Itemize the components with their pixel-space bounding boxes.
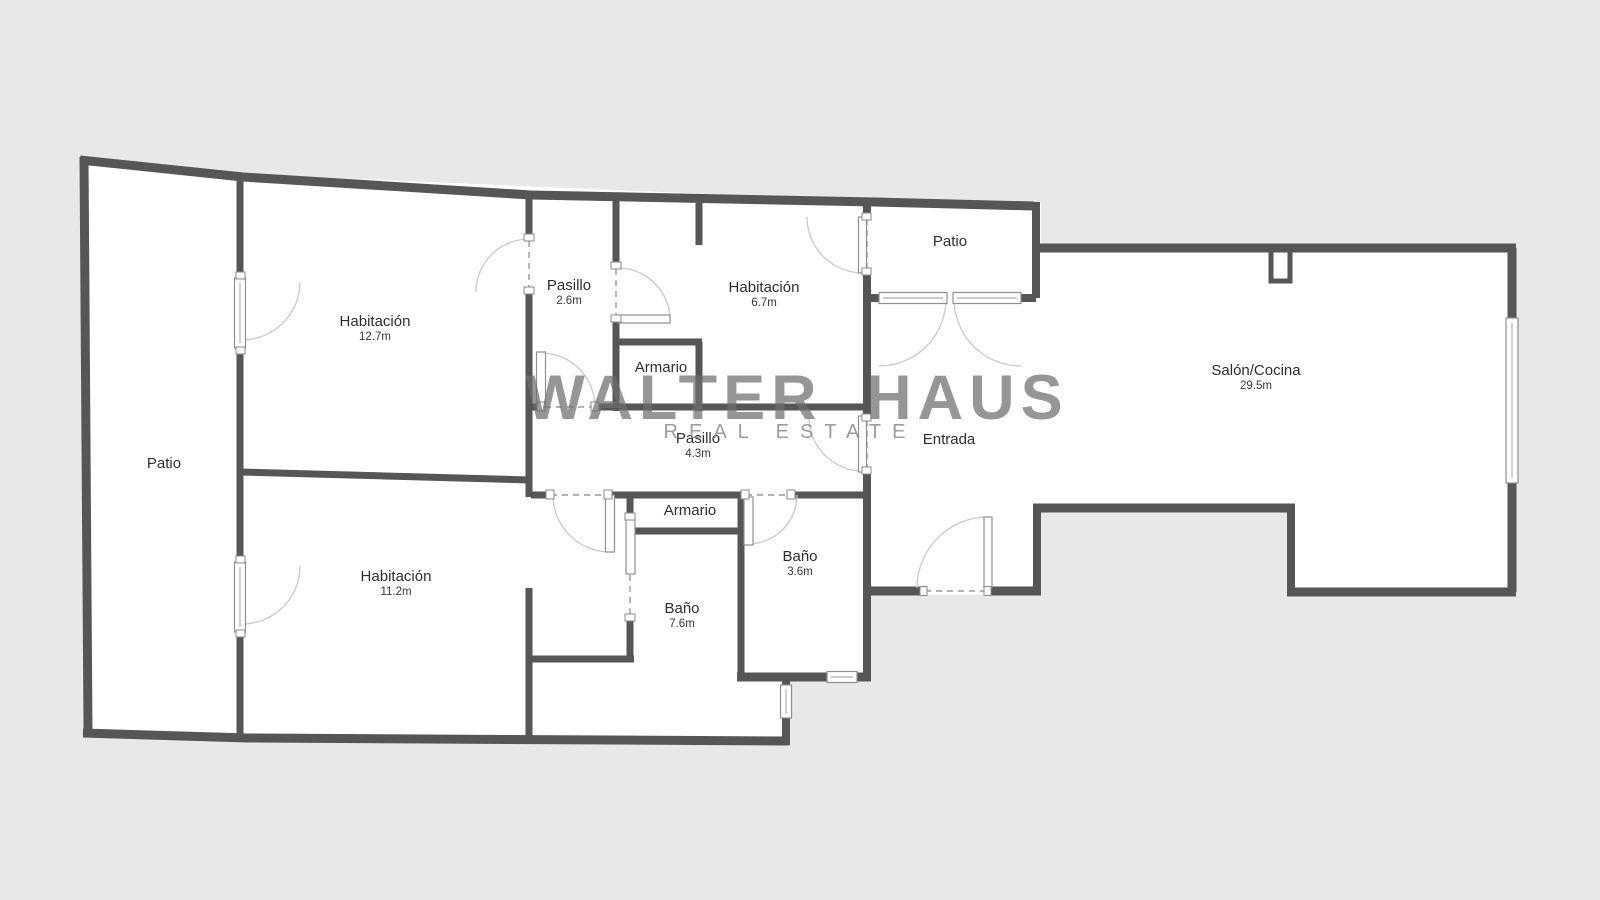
window-bano76-bottom xyxy=(781,685,792,718)
window-patio-hab127 xyxy=(235,278,246,348)
french-door-right xyxy=(953,293,1021,304)
room-label-habitacion-67: Habitación 6.7m xyxy=(729,279,800,311)
room-label-bano-36: Baño 3.6m xyxy=(782,548,817,580)
door-leaf-pasillo43-bano76 xyxy=(606,495,615,552)
door-leaf-front-entrance xyxy=(984,517,992,588)
room-area: 7.6m xyxy=(664,617,699,632)
room-name: Salón/Cocina xyxy=(1211,362,1300,379)
room-area: 12.7m xyxy=(340,330,411,345)
room-label-armario-bottom: Armario xyxy=(664,502,717,519)
room-name: Baño xyxy=(664,600,699,617)
window-patio-hab112 xyxy=(235,562,246,632)
window-salon-right xyxy=(1506,318,1518,483)
room-name: Patio xyxy=(147,455,181,472)
door-leaf-pasillo43-bano36 xyxy=(744,497,753,545)
brand-watermark-subtitle: REAL ESTATE xyxy=(664,421,917,444)
floor-patio-left xyxy=(80,157,243,738)
room-area: 6.7m xyxy=(729,296,800,311)
room-area: 2.6m xyxy=(547,294,591,309)
floor-salon xyxy=(1028,244,1516,596)
room-name: Habitación xyxy=(729,279,800,296)
room-label-salon-cocina: Salón/Cocina 29.5m xyxy=(1211,362,1300,394)
sliding-door-leaf-bano76 xyxy=(626,517,635,574)
room-label-patio-top: Patio xyxy=(933,233,967,250)
room-label-patio-left: Patio xyxy=(147,455,181,472)
room-label-pasillo-26: Pasillo 2.6m xyxy=(547,277,591,309)
door-leaf-pasillo26-hab67 xyxy=(618,315,670,323)
door-leaf-entrada-hab67 xyxy=(859,217,867,273)
window-bano36-bottom xyxy=(827,672,857,683)
room-name: Patio xyxy=(933,233,967,250)
room-name: Pasillo xyxy=(547,277,591,294)
room-name: Armario xyxy=(664,502,717,519)
floor-plan-page: Patio Habitación 12.7m Pasillo 2.6m Habi… xyxy=(0,0,1600,900)
room-label-habitacion-112: Habitación 11.2m xyxy=(361,568,432,600)
room-name: Habitación xyxy=(361,568,432,585)
room-area: 3.6m xyxy=(782,565,817,580)
french-door-left xyxy=(879,293,947,304)
room-label-bano-76: Baño 7.6m xyxy=(664,600,699,632)
room-area: 29.5m xyxy=(1211,379,1300,394)
room-name: Habitación xyxy=(340,313,411,330)
room-area: 4.3m xyxy=(676,447,720,462)
room-area: 11.2m xyxy=(361,585,432,600)
room-name: Baño xyxy=(782,548,817,565)
room-label-habitacion-127: Habitación 12.7m xyxy=(340,313,411,345)
floor-plan-drawing xyxy=(0,0,1600,900)
